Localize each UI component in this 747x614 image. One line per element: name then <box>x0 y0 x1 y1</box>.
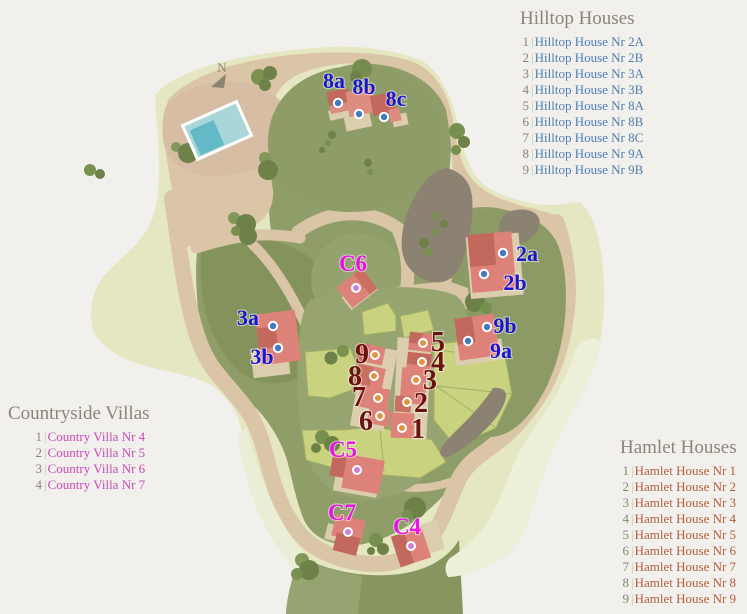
svg-text:3a: 3a <box>237 305 259 330</box>
svg-text:3b: 3b <box>250 344 273 369</box>
svg-text:C6: C6 <box>339 251 367 276</box>
svg-text:C4: C4 <box>393 514 422 539</box>
svg-text:9a: 9a <box>490 338 512 363</box>
svg-text:2a: 2a <box>516 241 538 266</box>
svg-text:1: 1 <box>411 414 425 445</box>
svg-text:6: 6 <box>359 406 373 437</box>
svg-text:8c: 8c <box>386 86 407 111</box>
svg-text:C5: C5 <box>329 437 357 462</box>
svg-text:8a: 8a <box>323 68 345 93</box>
svg-text:N: N <box>217 60 227 75</box>
svg-text:9b: 9b <box>493 313 516 338</box>
svg-text:C7: C7 <box>328 500 356 525</box>
svg-text:2b: 2b <box>503 270 526 295</box>
svg-text:8b: 8b <box>352 74 375 99</box>
